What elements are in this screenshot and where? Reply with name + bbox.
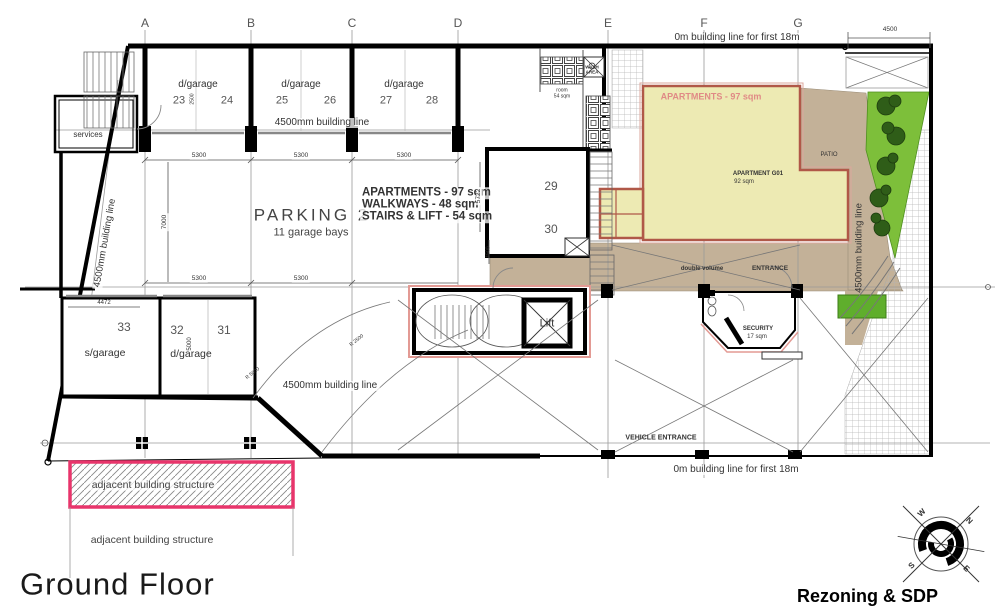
garage-31: 31 bbox=[217, 324, 230, 336]
wash-area-label: WASH AREA bbox=[579, 66, 605, 75]
room-30: 30 bbox=[544, 223, 557, 235]
dim-5300-5: 5300 bbox=[292, 276, 310, 283]
grid-letter-b: B bbox=[247, 17, 255, 29]
garage-33: 33 bbox=[117, 321, 130, 333]
garage-bay1-type: d/garage bbox=[178, 80, 217, 90]
building-line-right-label: 4500mm building line bbox=[854, 203, 864, 293]
building-line-top-label: 0m building line for first 18m bbox=[672, 33, 801, 43]
parking-title: PARKING 2 bbox=[254, 207, 370, 224]
security-kiosk bbox=[701, 290, 802, 359]
schedule-walkways: WALKWAYS - 48 sqm bbox=[360, 199, 481, 211]
garage-bay2-type: d/garage bbox=[281, 80, 320, 90]
dim-5722: 5722 bbox=[476, 187, 483, 205]
dim-2500: 2500 bbox=[191, 93, 196, 104]
store-room-area: 54 sqm bbox=[554, 95, 570, 100]
grid-letter-f: F bbox=[700, 17, 707, 29]
garage-23: 23 bbox=[173, 96, 185, 107]
schedule-apartments: APARTMENTS - 97 sqm bbox=[360, 187, 493, 199]
adjacent-structure-label: adjacent building structure bbox=[89, 535, 216, 546]
stairs-northwest bbox=[84, 52, 134, 128]
lift-label: Lift bbox=[540, 319, 555, 330]
dim-5300-1: 5300 bbox=[190, 153, 208, 160]
dim-4472: 4472 bbox=[95, 300, 112, 306]
grid-letter-e: E bbox=[604, 17, 612, 29]
dim-1500: 1500 bbox=[487, 246, 492, 257]
garage-bay3-type: d/garage bbox=[384, 80, 423, 90]
garage-24: 24 bbox=[221, 96, 233, 107]
security-area-label: 17 sqm bbox=[747, 334, 767, 340]
grid-letter-d: D bbox=[454, 17, 463, 29]
grid-letter-c: C bbox=[348, 17, 357, 29]
dim-7000: 7000 bbox=[162, 213, 169, 231]
patio-label: PATIO bbox=[820, 152, 837, 158]
garage-25: 25 bbox=[276, 96, 288, 107]
schedule-stairs-lift: STAIRS & LIFT - 54 sqm bbox=[360, 211, 494, 223]
s-garage-label: s/garage bbox=[85, 348, 126, 359]
dim-4500-top: 4500 bbox=[881, 27, 899, 34]
garage-row-north bbox=[139, 48, 604, 152]
garage-28: 28 bbox=[426, 96, 438, 107]
apartment-unit-area: 92 sqm bbox=[734, 179, 754, 185]
building-line-garage-label: 4500mm building line bbox=[273, 118, 372, 128]
grid-letter-g: G bbox=[793, 17, 802, 29]
entrance-label: ENTRANCE bbox=[752, 266, 788, 273]
garage-32: 32 bbox=[170, 324, 183, 336]
services-label: services bbox=[73, 131, 102, 139]
parking-subtitle: 11 garage bays bbox=[273, 228, 348, 239]
adjacent-structure-hatch-label: adjacent building structure bbox=[90, 480, 217, 491]
floor-plan-sheet: A B C D E F G 0m building line for first… bbox=[0, 0, 1000, 613]
floor-title: Ground Floor bbox=[20, 569, 215, 600]
double-volume-label: double volume bbox=[681, 266, 723, 272]
vehicle-entrance-label: VEHICLE ENTRANCE bbox=[625, 435, 696, 442]
room-29: 29 bbox=[544, 180, 557, 192]
garage-26: 26 bbox=[324, 96, 336, 107]
building-line-south-label: 4500mm building line bbox=[281, 381, 380, 391]
dim-5300-2: 5300 bbox=[292, 153, 310, 160]
floor-plan-drawing bbox=[0, 0, 1000, 613]
d-garage-label: d/garage bbox=[170, 349, 211, 360]
security-label: SECURITY bbox=[743, 326, 773, 332]
dim-5300-4: 5300 bbox=[190, 276, 208, 283]
doc-title: Rezoning & SDP bbox=[797, 587, 938, 605]
apartments-zone-label: APARTMENTS - 97 sqm bbox=[661, 93, 762, 102]
apartment-unit-label: APARTMENT G01 bbox=[733, 171, 783, 177]
garage-27: 27 bbox=[380, 96, 392, 107]
grid-letter-a: A bbox=[141, 17, 149, 29]
wash-area bbox=[540, 48, 612, 151]
building-line-bottom-label: 0m building line for first 18m bbox=[671, 465, 800, 475]
dim-5300-3: 5300 bbox=[395, 153, 413, 160]
